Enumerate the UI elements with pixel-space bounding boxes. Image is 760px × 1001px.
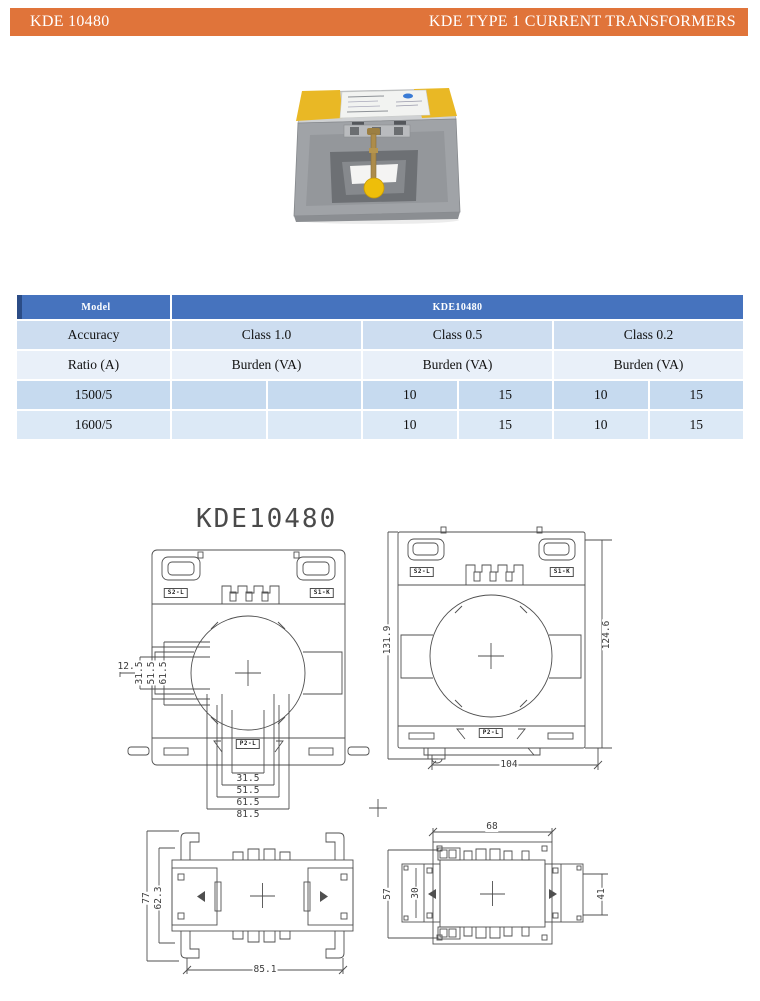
terminal-label-p2l: P2-L xyxy=(479,728,503,738)
dim-31-5-bottom: 31.5 xyxy=(236,774,261,784)
terminal-label-s1k: S1-K xyxy=(310,588,334,598)
burden-value-cell xyxy=(172,381,266,409)
ratio-value-cell: 1600/5 xyxy=(17,411,170,439)
burden-value-cell: 15 xyxy=(459,381,553,409)
dim-31-5-left: 31.5 xyxy=(135,661,145,686)
rail-view-drawing: S2-L S1-K P2-L 131.9 124.6 104 xyxy=(378,518,630,776)
burden-value-cell: 10 xyxy=(554,411,648,439)
model-header-cell: Model xyxy=(17,295,170,319)
product-photo-image xyxy=(288,78,466,226)
table-row-1600: 1600/5 10 15 10 15 xyxy=(17,411,743,439)
table-row-1500: 1500/5 10 15 10 15 xyxy=(17,381,743,409)
dim-131-9: 131.9 xyxy=(383,625,393,656)
accuracy-row: Accuracy Class 1.0 Class 0.5 Class 0.2 xyxy=(17,321,743,349)
burden-value-cell: 10 xyxy=(554,381,648,409)
dim-124-6: 124.6 xyxy=(602,620,612,651)
product-label xyxy=(340,90,430,118)
yellow-knob xyxy=(364,178,384,198)
dim-30: 30 xyxy=(411,886,421,899)
burden-value-cell: 10 xyxy=(363,381,457,409)
dim-51-5-left: 51.5 xyxy=(147,661,157,686)
dim-104: 104 xyxy=(499,760,518,770)
burden-value-cell xyxy=(268,381,362,409)
drawing-title: KDE10480 xyxy=(196,504,337,534)
burden-cell: Burden (VA) xyxy=(554,351,743,379)
class-1-0-cell: Class 1.0 xyxy=(172,321,361,349)
class-0-5-cell: Class 0.5 xyxy=(363,321,552,349)
table-header-row: Model KDE10480 xyxy=(17,295,743,319)
burden-cell: Burden (VA) xyxy=(172,351,361,379)
dim-68: 68 xyxy=(485,822,498,832)
burden-value-cell xyxy=(268,411,362,439)
dim-41: 41 xyxy=(597,887,607,900)
ratio-row: Ratio (A) Burden (VA) Burden (VA) Burden… xyxy=(17,351,743,379)
accuracy-label-cell: Accuracy xyxy=(17,321,170,349)
doc-code: KDE 10480 xyxy=(10,13,110,31)
burden-value-cell: 10 xyxy=(363,411,457,439)
top-view-drawing: 77 62.3 85.1 xyxy=(135,818,375,988)
label-logo xyxy=(403,94,413,99)
header-bar: KDE 10480 KDE TYPE 1 CURRENT TRANSFORMER… xyxy=(10,8,748,36)
dim-85-1: 85.1 xyxy=(253,965,278,975)
product-photo xyxy=(288,78,466,226)
spec-table: Model KDE10480 Accuracy Class 1.0 Class … xyxy=(15,293,745,441)
rail-view-linework xyxy=(378,518,630,776)
dim-61-5-bottom: 61.5 xyxy=(236,798,261,808)
terminal-label-p2l: P2-L xyxy=(236,739,260,749)
terminal-label-s2l: S2-L xyxy=(164,588,188,598)
doc-title: KDE TYPE 1 CURRENT TRANSFORMERS xyxy=(429,13,748,31)
dim-57: 57 xyxy=(383,887,393,900)
terminal-label-s1k: S1-K xyxy=(550,567,574,577)
burden-cell: Burden (VA) xyxy=(363,351,552,379)
ratio-value-cell: 1500/5 xyxy=(17,381,170,409)
burden-value-cell: 15 xyxy=(459,411,553,439)
top-view-rail-drawing: 68 57 30 41 xyxy=(376,812,628,962)
burden-value-cell: 15 xyxy=(650,381,744,409)
terminal-label-s2l: S2-L xyxy=(410,567,434,577)
dim-61-5-left: 61.5 xyxy=(159,661,169,686)
dim-77: 77 xyxy=(142,891,152,904)
ratio-label-cell: Ratio (A) xyxy=(17,351,170,379)
dim-51-5-bottom: 51.5 xyxy=(236,786,261,796)
burden-value-cell: 15 xyxy=(650,411,744,439)
class-0-2-cell: Class 0.2 xyxy=(554,321,743,349)
model-value-cell: KDE10480 xyxy=(172,295,743,319)
top-view-linework xyxy=(135,818,375,988)
datasheet-page: KDE 10480 KDE TYPE 1 CURRENT TRANSFORMER… xyxy=(0,0,760,1001)
front-view-drawing: S2-L S1-K P2-L 12.5 31.5 51.5 61.5 31.5 … xyxy=(118,542,370,822)
yellow-block-left xyxy=(296,90,343,121)
burden-value-cell xyxy=(172,411,266,439)
dim-62-3: 62.3 xyxy=(154,886,164,911)
